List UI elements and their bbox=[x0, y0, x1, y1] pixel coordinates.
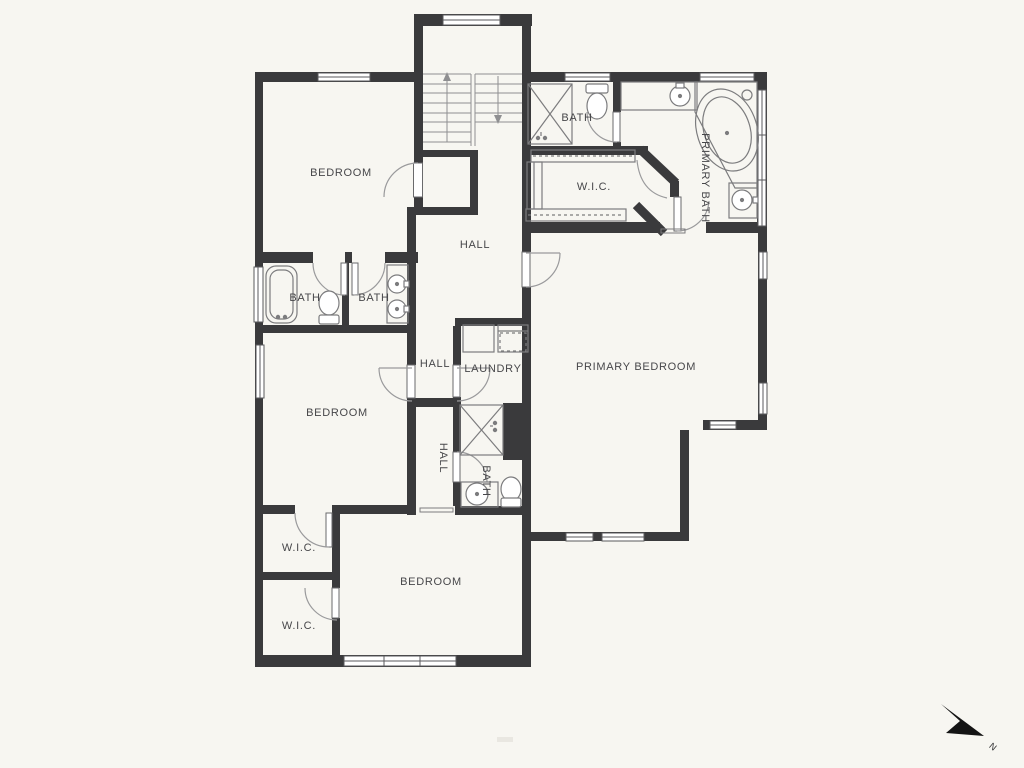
compass-north-label: N bbox=[987, 741, 998, 753]
label-primary-bath: PRIMARY BATH bbox=[699, 133, 711, 223]
label-hall-corridor: HALL bbox=[437, 443, 449, 473]
label-hall-mid: HALL bbox=[420, 358, 450, 370]
label-primary-bedroom: PRIMARY BEDROOM bbox=[576, 361, 696, 373]
floor-plan-page: BEDROOM BATH W.I.C. PRIMARY BATH HALL PR… bbox=[0, 0, 1024, 768]
room-labels: BEDROOM BATH W.I.C. PRIMARY BATH HALL PR… bbox=[282, 112, 711, 632]
label-bath-top: BATH bbox=[561, 112, 592, 124]
left-bath2-sinks bbox=[387, 265, 409, 323]
label-wic-primary: W.I.C. bbox=[577, 181, 611, 193]
label-wic-2: W.I.C. bbox=[282, 620, 316, 632]
label-bath-mid: BATH bbox=[480, 465, 492, 496]
label-bath-left-sinks: BATH bbox=[358, 292, 389, 304]
label-wic-1: W.I.C. bbox=[282, 542, 316, 554]
middle-bath-toilet bbox=[501, 477, 521, 507]
primary-bath-tub bbox=[685, 81, 768, 188]
floor-plan: BEDROOM BATH W.I.C. PRIMARY BATH HALL PR… bbox=[0, 0, 1024, 768]
primary-bath-vanity-top bbox=[621, 82, 697, 110]
left-bath-toilet bbox=[319, 291, 339, 324]
vestibule-wall-post bbox=[670, 181, 679, 197]
stairs bbox=[423, 74, 522, 146]
middle-bath-shower bbox=[460, 405, 503, 455]
label-bedroom-mid-left: BEDROOM bbox=[306, 407, 368, 419]
north-arrow-icon bbox=[941, 704, 984, 736]
label-bath-left-tub: BATH bbox=[289, 292, 320, 304]
label-bedroom-top-left: BEDROOM bbox=[310, 167, 372, 179]
label-laundry: LAUNDRY bbox=[464, 363, 521, 375]
stair-direction-arrows bbox=[443, 72, 502, 124]
compass: N bbox=[941, 704, 999, 753]
label-bedroom-bottom: BEDROOM bbox=[400, 576, 462, 588]
label-hall-upper: HALL bbox=[460, 239, 490, 251]
watermark bbox=[497, 737, 513, 742]
walls bbox=[255, 14, 767, 667]
laundry-appliances bbox=[463, 325, 528, 352]
